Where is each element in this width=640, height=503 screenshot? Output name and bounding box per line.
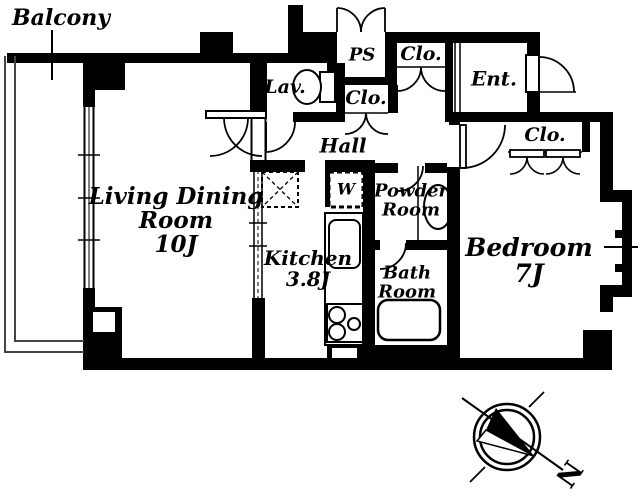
living-dining-line1: Living Dining: [89, 185, 264, 209]
pipe-space-label: PS: [349, 47, 376, 66]
entrance-door: [526, 55, 576, 92]
living-dining-label: Living Dining Room 10J: [89, 185, 264, 257]
balcony-outline: [5, 56, 84, 352]
bedroom-line2: 7J: [465, 261, 593, 287]
bedroom-door: [460, 125, 505, 168]
compass-icon: [462, 392, 563, 482]
kitchen-line2: 3.8J: [264, 269, 352, 290]
living-room-double-door: [206, 111, 266, 160]
bedroom-label: Bedroom 7J: [465, 235, 593, 287]
bedroom-window: [604, 230, 638, 272]
fridge-box: [262, 172, 298, 207]
closet-bedroom-bifold-doors: [508, 150, 582, 174]
floor-plan: Balcony Living Dining Room 10J Kitchen 3…: [0, 0, 640, 503]
closet-bedroom-label: Clo.: [524, 126, 565, 146]
balcony-label: Balcony: [12, 7, 110, 30]
kitchen-line1: Kitchen: [264, 248, 352, 269]
kitchen-label: Kitchen 3.8J: [264, 248, 352, 290]
lavatory-door: [265, 122, 295, 152]
living-dining-line2: Room: [89, 209, 264, 233]
bath-room-line1: Bath: [378, 264, 436, 283]
powder-room-line1: Powder: [374, 182, 448, 201]
closet-top-label: Clo.: [400, 45, 441, 65]
bath-room-label: Bath Room: [378, 264, 436, 301]
stove-icon: [327, 304, 363, 342]
closet-hall-doors: [345, 113, 388, 134]
powder-room-line2: Room: [374, 201, 448, 220]
hall-label: Hall: [319, 136, 366, 157]
lavatory-label: Lav.: [264, 78, 305, 98]
bath-room-line2: Room: [378, 283, 436, 302]
powder-room-label: Powder Room: [374, 182, 448, 219]
ps-double-doors: [337, 8, 385, 32]
entrance-step-line: [455, 43, 460, 112]
closet-top-doors: [397, 67, 445, 91]
entrance-label: Ent.: [471, 69, 517, 90]
bedroom-line1: Bedroom: [465, 235, 593, 261]
living-dining-line3: 10J: [89, 233, 264, 257]
washer-label: W: [337, 182, 355, 199]
bathtub-icon: [378, 300, 440, 340]
closet-hall-label: Clo.: [345, 89, 386, 109]
